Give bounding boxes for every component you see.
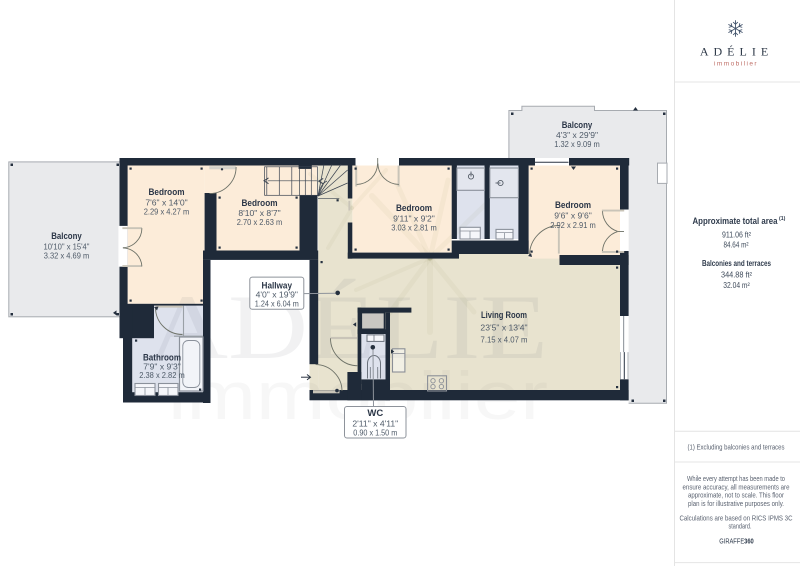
svg-text:344.88 ft²: 344.88 ft² <box>721 270 752 279</box>
svg-text:WC: WC <box>367 408 383 419</box>
svg-text:Living Room: Living Room <box>481 310 527 321</box>
svg-text:(1) Excluding balconies and te: (1) Excluding balconies and terraces <box>688 443 785 452</box>
svg-text:2.38 x 2.82 m: 2.38 x 2.82 m <box>139 370 185 380</box>
svg-text:1.24 x 6.04 m: 1.24 x 6.04 m <box>255 299 299 309</box>
svg-text:Approximate total area: Approximate total area <box>693 216 779 226</box>
svg-text:1.32 x 9.09 m: 1.32 x 9.09 m <box>554 139 600 149</box>
svg-text:7.15 x 4.07 m: 7.15 x 4.07 m <box>481 335 528 345</box>
svg-text:23'5" x 13'4": 23'5" x 13'4" <box>480 322 527 332</box>
svg-text:2.70 x 2.63 m: 2.70 x 2.63 m <box>237 217 283 227</box>
svg-text:9'6" x 9'6": 9'6" x 9'6" <box>554 210 592 220</box>
svg-text:immobilier: immobilier <box>714 61 758 68</box>
svg-text:32.04 m²: 32.04 m² <box>723 281 750 290</box>
svg-text:ADÉLIE: ADÉLIE <box>700 45 773 59</box>
svg-text:0.90 x 1.50 m: 0.90 x 1.50 m <box>353 427 397 437</box>
svg-text:3.32 x 4.69 m: 3.32 x 4.69 m <box>44 251 90 261</box>
svg-text:2.92 x 2.91 m: 2.92 x 2.91 m <box>550 220 596 230</box>
svg-text:2.29 x 4.27 m: 2.29 x 4.27 m <box>144 207 190 217</box>
svg-text:Balconies and terraces: Balconies and terraces <box>702 259 771 268</box>
svg-text:84.64 m²: 84.64 m² <box>724 241 749 250</box>
svg-text:GIRAFFE360: GIRAFFE360 <box>719 537 754 546</box>
svg-text:3.03 x 2.81 m: 3.03 x 2.81 m <box>391 222 437 232</box>
svg-text:(1): (1) <box>779 216 786 222</box>
svg-text:911.06 ft²: 911.06 ft² <box>722 231 751 240</box>
svg-text:plan is for illustrative purpo: plan is for illustrative purposes only. <box>688 499 784 508</box>
svg-text:standard.: standard. <box>729 522 752 531</box>
